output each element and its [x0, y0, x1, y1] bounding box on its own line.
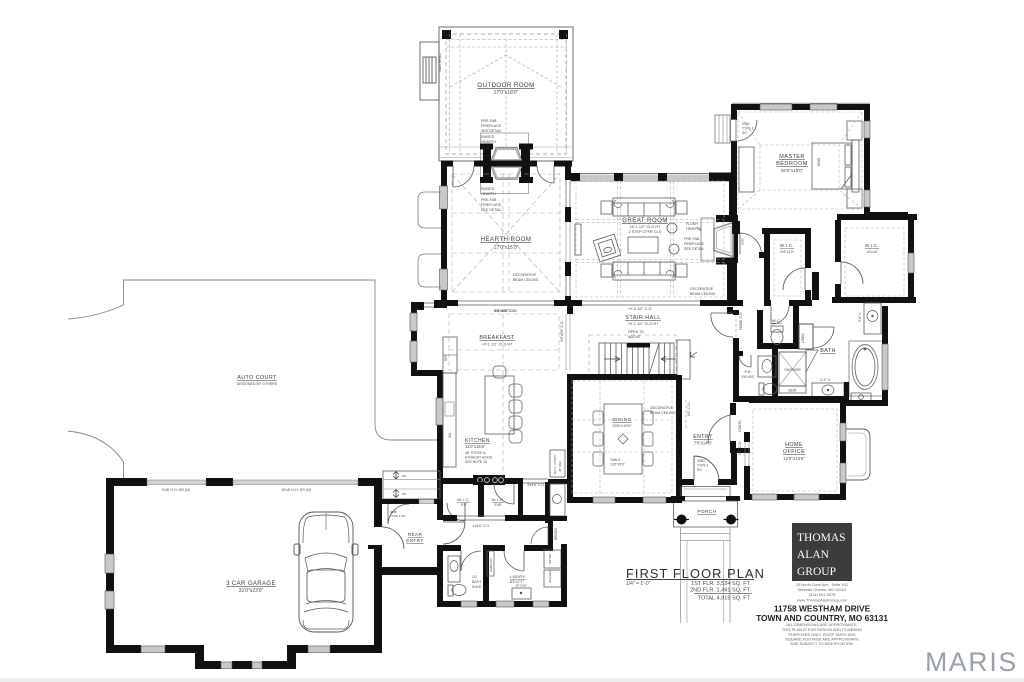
svg-text:6'8"x6'8" C.O.: 6'8"x6'8" C.O.	[494, 309, 516, 313]
svg-text:5'x6'6": 5'x6'6"	[472, 585, 483, 589]
svg-text:REAR: REAR	[408, 532, 423, 537]
svg-text:TYPE 1 SG: TYPE 1 SG	[390, 514, 406, 518]
svg-text:5'x5': 5'x5'	[494, 503, 501, 507]
svg-text:17'0"x15'0": 17'0"x15'0"	[494, 245, 519, 251]
svg-text:SEAT: SEAT	[788, 389, 797, 393]
svg-text:W.I.C.: W.I.C.	[780, 243, 794, 248]
svg-text:BATH: BATH	[820, 348, 836, 354]
svg-text:BEDROOM: BEDROOM	[776, 161, 808, 167]
svg-text:16'x8' O.H. DR (N): 16'x8' O.H. DR (N)	[281, 488, 311, 492]
svg-text:LNDRY: LNDRY	[510, 574, 526, 579]
svg-text:W.I.P.: W.I.P.	[492, 497, 505, 502]
svg-text:2 STEP CFFR CLG: 2 STEP CFFR CLG	[628, 230, 661, 234]
svg-text:FIRST FLOOR PLAN: FIRST FLOOR PLAN	[626, 566, 765, 581]
svg-text:HAMPERS: HAMPERS	[489, 558, 493, 572]
svg-text:SEE NOTE 10: SEE NOTE 10	[465, 460, 487, 464]
svg-text:1ST FLR. 3,524 SQ. FT.: 1ST FLR. 3,524 SQ. FT.	[691, 581, 751, 587]
svg-text:BEAM CEILING: BEAM CEILING	[513, 278, 539, 282]
svg-text:RAISED: RAISED	[481, 187, 495, 191]
svg-text:OPEN TO: OPEN TO	[628, 330, 644, 334]
svg-text:2ND FLR. 1,491 SQ. FT.: 2ND FLR. 1,491 SQ. FT.	[690, 588, 751, 594]
svg-text:48" REF: 48" REF	[558, 461, 562, 472]
svg-text:BUTL. PNTRY: BUTL. PNTRY	[553, 455, 557, 474]
svg-text:PRE-FAB: PRE-FAB	[481, 119, 497, 123]
svg-text:HEARTH: HEARTH	[481, 140, 496, 144]
svg-text:16'0"x16'0": 16'0"x16'0"	[781, 168, 804, 173]
svg-text:GAS GRILL: GAS GRILL	[438, 53, 442, 72]
svg-text:+8'-1 1/2" CLG HT: +8'-1 1/2" CLG HT	[627, 322, 659, 326]
svg-text:48" SINK: 48" SINK	[515, 584, 527, 588]
svg-text:BROOM: BROOM	[554, 528, 558, 540]
svg-text:COATS: COATS	[738, 420, 742, 432]
svg-text:www.ThomasAlanGroup.com: www.ThomasAlanGroup.com	[797, 598, 847, 603]
svg-text:PRE-FAB: PRE-FAB	[684, 237, 700, 241]
svg-text:EXHAUST HOOD: EXHAUST HOOD	[465, 456, 493, 460]
svg-text:DN: DN	[402, 492, 406, 496]
svg-text:DECORATIVE: DECORATIVE	[690, 287, 714, 291]
svg-text:DW: DW	[448, 433, 452, 438]
svg-text:6'8" C.O.: 6'8" C.O.	[687, 402, 691, 416]
svg-text:WASHER: WASHER	[548, 569, 552, 583]
svg-text:5'0" C.O.: 5'0" C.O.	[738, 441, 742, 455]
svg-text:11'0"x15'6": 11'0"x15'6"	[465, 444, 486, 449]
svg-text:13'0"x5'0": 13'0"x5'0"	[610, 463, 626, 467]
svg-text:5'8"x10': 5'8"x10'	[780, 250, 793, 254]
svg-text:BATH: BATH	[472, 580, 481, 584]
svg-text:TOTAL 4,915 SQ. FT.: TOTAL 4,915 SQ. FT.	[698, 596, 752, 602]
svg-text:1/2: 1/2	[472, 575, 477, 579]
svg-text:3'-6" V: 3'-6" V	[820, 378, 831, 382]
svg-text:STAIR HALL: STAIR HALL	[625, 315, 661, 321]
svg-text:2680: 2680	[741, 238, 745, 245]
svg-text:11758 WESTHAM DRIVE: 11758 WESTHAM DRIVE	[774, 604, 871, 614]
svg-text:PRE-FAB: PRE-FAB	[481, 198, 497, 202]
svg-text:12'6"x13'6": 12'6"x13'6"	[783, 456, 805, 461]
svg-text:TYPE 1: TYPE 1	[697, 464, 709, 468]
svg-text:BREAKFAST: BREAKFAST	[479, 335, 515, 341]
svg-text:13'6"x13'0": 13'6"x13'0"	[612, 423, 632, 428]
svg-text:REF: REF	[444, 355, 448, 361]
svg-text:HOME: HOME	[785, 442, 803, 448]
svg-text:BEAM CEILING: BEAM CEILING	[690, 292, 716, 296]
svg-text:DRYER: DRYER	[548, 553, 552, 564]
svg-text:MARIS: MARIS	[925, 647, 1018, 677]
svg-text:AND SUBJECT TO MODIFICATION.: AND SUBJECT TO MODIFICATION.	[790, 641, 853, 646]
svg-text:5'6"x5'6": 5'6"x5'6"	[742, 375, 756, 379]
svg-text:FLUSH: FLUSH	[686, 222, 698, 226]
svg-text:17'0"x18'0": 17'0"x18'0"	[494, 90, 519, 96]
svg-text:HEARTH ROOM: HEARTH ROOM	[481, 236, 532, 243]
svg-text:DECORATIVE: DECORATIVE	[650, 406, 674, 410]
svg-text:(314) 501-9975: (314) 501-9975	[809, 592, 836, 597]
svg-text:FIREPLACE: FIREPLACE	[481, 203, 502, 207]
svg-text:DESIGNED BY OTHERS: DESIGNED BY OTHERS	[237, 382, 278, 386]
svg-text:ENTRY: ENTRY	[406, 538, 424, 543]
svg-text:GREAT ROOM: GREAT ROOM	[622, 217, 668, 224]
svg-text:W.I.C.: W.I.C.	[865, 243, 879, 248]
svg-text:LINEN: LINEN	[801, 332, 805, 343]
svg-text:+9'-1 1/2" CLG HT: +9'-1 1/2" CLG HT	[481, 343, 513, 347]
svg-text:HEARTH: HEARTH	[481, 192, 496, 196]
svg-text:5'5": 5'5"	[461, 503, 468, 507]
svg-text:W.C.: W.C.	[772, 318, 782, 323]
svg-text:OUTDOOR ROOM: OUTDOOR ROOM	[477, 82, 534, 89]
svg-text:1/4" = 1'-0": 1/4" = 1'-0"	[626, 581, 651, 587]
svg-text:PORCH: PORCH	[697, 509, 716, 515]
svg-text:31'0"x23'0": 31'0"x23'0"	[239, 588, 264, 594]
svg-text:OFFICE: OFFICE	[783, 449, 805, 455]
svg-text:P.R.: P.R.	[745, 370, 752, 374]
svg-text:ABOVE: ABOVE	[628, 335, 641, 339]
svg-text:3080: 3080	[697, 459, 705, 463]
svg-text:4'6"x6'8" C.O.: 4'6"x6'8" C.O.	[560, 320, 564, 342]
svg-text:SEE DETAIL: SEE DETAIL	[684, 247, 705, 251]
svg-text:MASTER: MASTER	[779, 154, 805, 160]
svg-text:DN: DN	[402, 474, 406, 478]
svg-text:SHOWER: SHOWER	[784, 368, 801, 372]
svg-text:3'-6" V: 3'-6" V	[858, 312, 862, 322]
svg-text:GROUP: GROUP	[797, 566, 836, 578]
svg-text:3'x6'8" C.O.: 3'x6'8" C.O.	[527, 483, 545, 487]
svg-text:AUTO COURT: AUTO COURT	[237, 375, 277, 381]
svg-text:KING: KING	[817, 157, 821, 166]
svg-text:ENTRY: ENTRY	[693, 434, 713, 440]
svg-text:3080: 3080	[742, 122, 750, 126]
svg-text:3 CAR GARAGE: 3 CAR GARAGE	[226, 581, 276, 587]
svg-text:SEE DETAIL: SEE DETAIL	[481, 129, 502, 133]
svg-text:HOME C.O.: HOME C.O.	[739, 311, 743, 330]
svg-text:ALAN: ALAN	[797, 549, 830, 561]
svg-text:FIREPLACE: FIREPLACE	[684, 242, 705, 246]
svg-text:DECORATIVE: DECORATIVE	[513, 273, 537, 277]
svg-text:FIREPLACE: FIREPLACE	[481, 124, 502, 128]
svg-text:TABLE: TABLE	[610, 458, 621, 462]
svg-text:1'x5'6" C.O.: 1'x5'6" C.O.	[472, 524, 490, 528]
svg-text:16'-1 1/2" CLG HT: 16'-1 1/2" CLG HT	[630, 225, 662, 229]
svg-text:9'x8' O.H. DR (N): 9'x8' O.H. DR (N)	[162, 488, 190, 492]
svg-text:10'x10': 10'x10'	[866, 250, 878, 254]
svg-text:SG: SG	[697, 468, 702, 472]
svg-text:48" STOVE &: 48" STOVE &	[465, 451, 486, 455]
svg-text:THOMAS: THOMAS	[797, 532, 846, 544]
svg-text:7'6"x14'6": 7'6"x14'6"	[694, 441, 713, 446]
svg-text:RAISED: RAISED	[481, 135, 495, 139]
svg-text:+9'-6 1/2" C.G.: +9'-6 1/2" C.G.	[628, 307, 653, 311]
svg-text:W.I.C.: W.I.C.	[457, 497, 470, 502]
svg-text:SG: SG	[742, 131, 747, 135]
